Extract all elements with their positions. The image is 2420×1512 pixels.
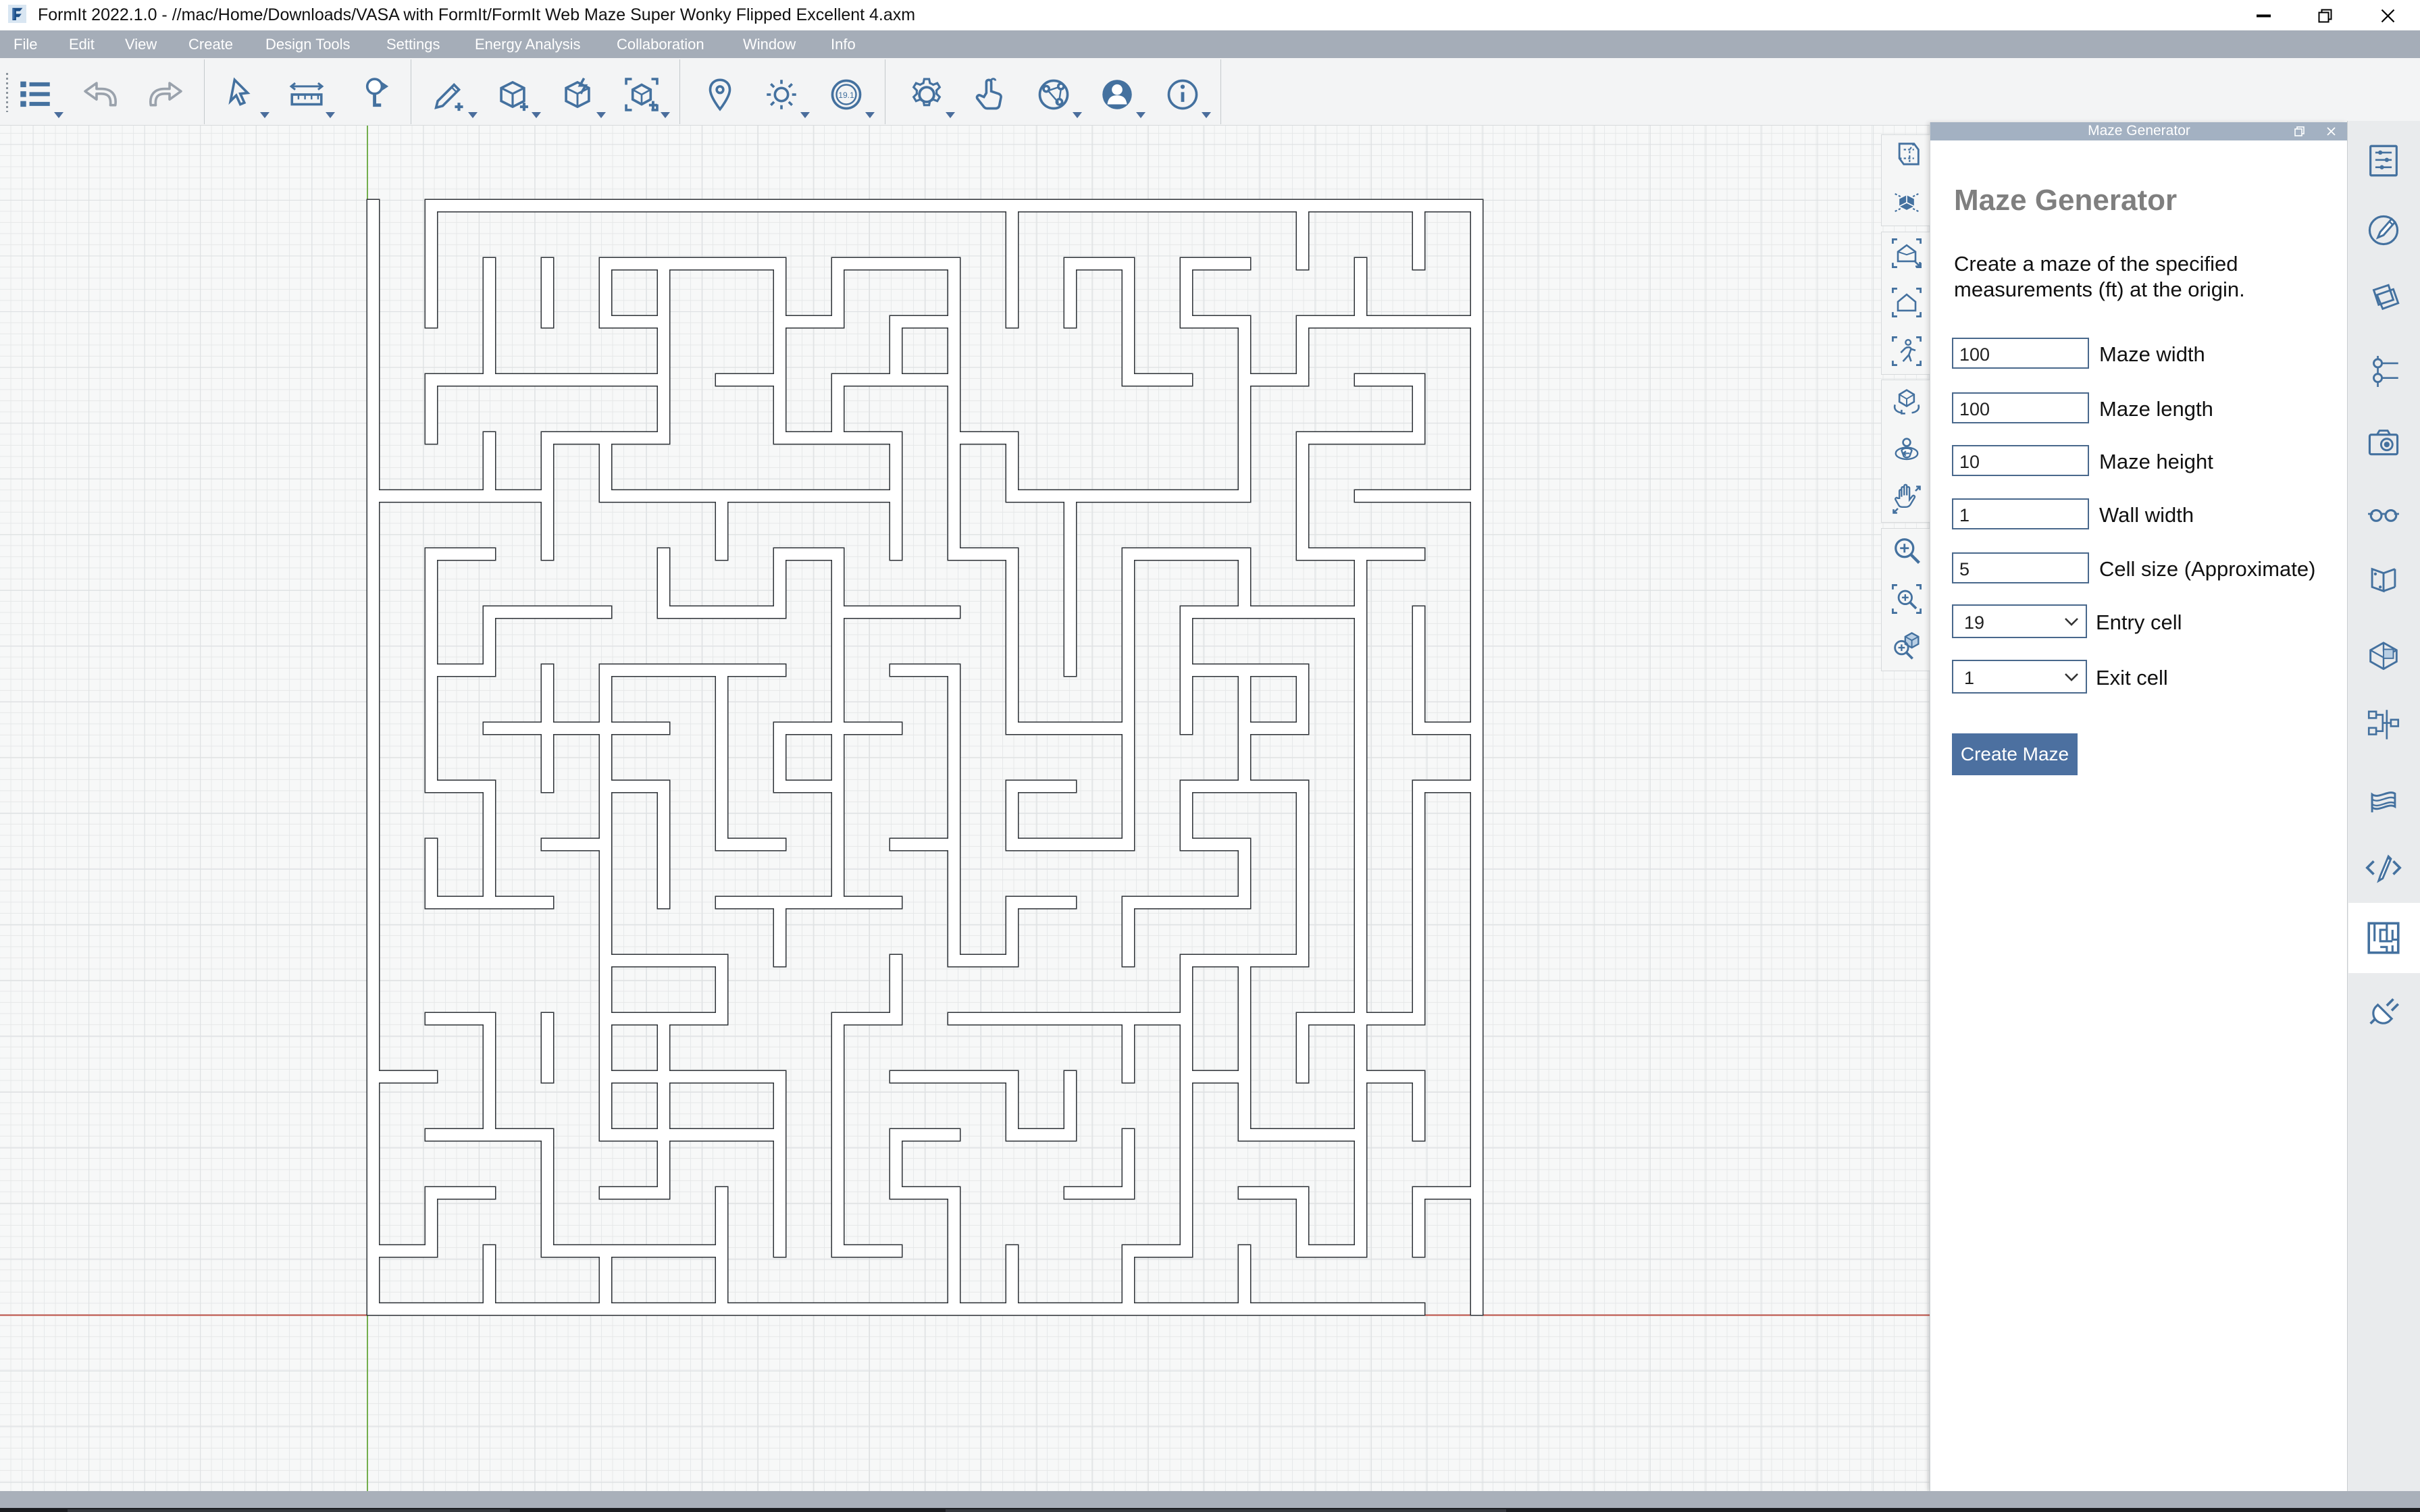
svg-text:19.1: 19.1 — [838, 90, 854, 100]
